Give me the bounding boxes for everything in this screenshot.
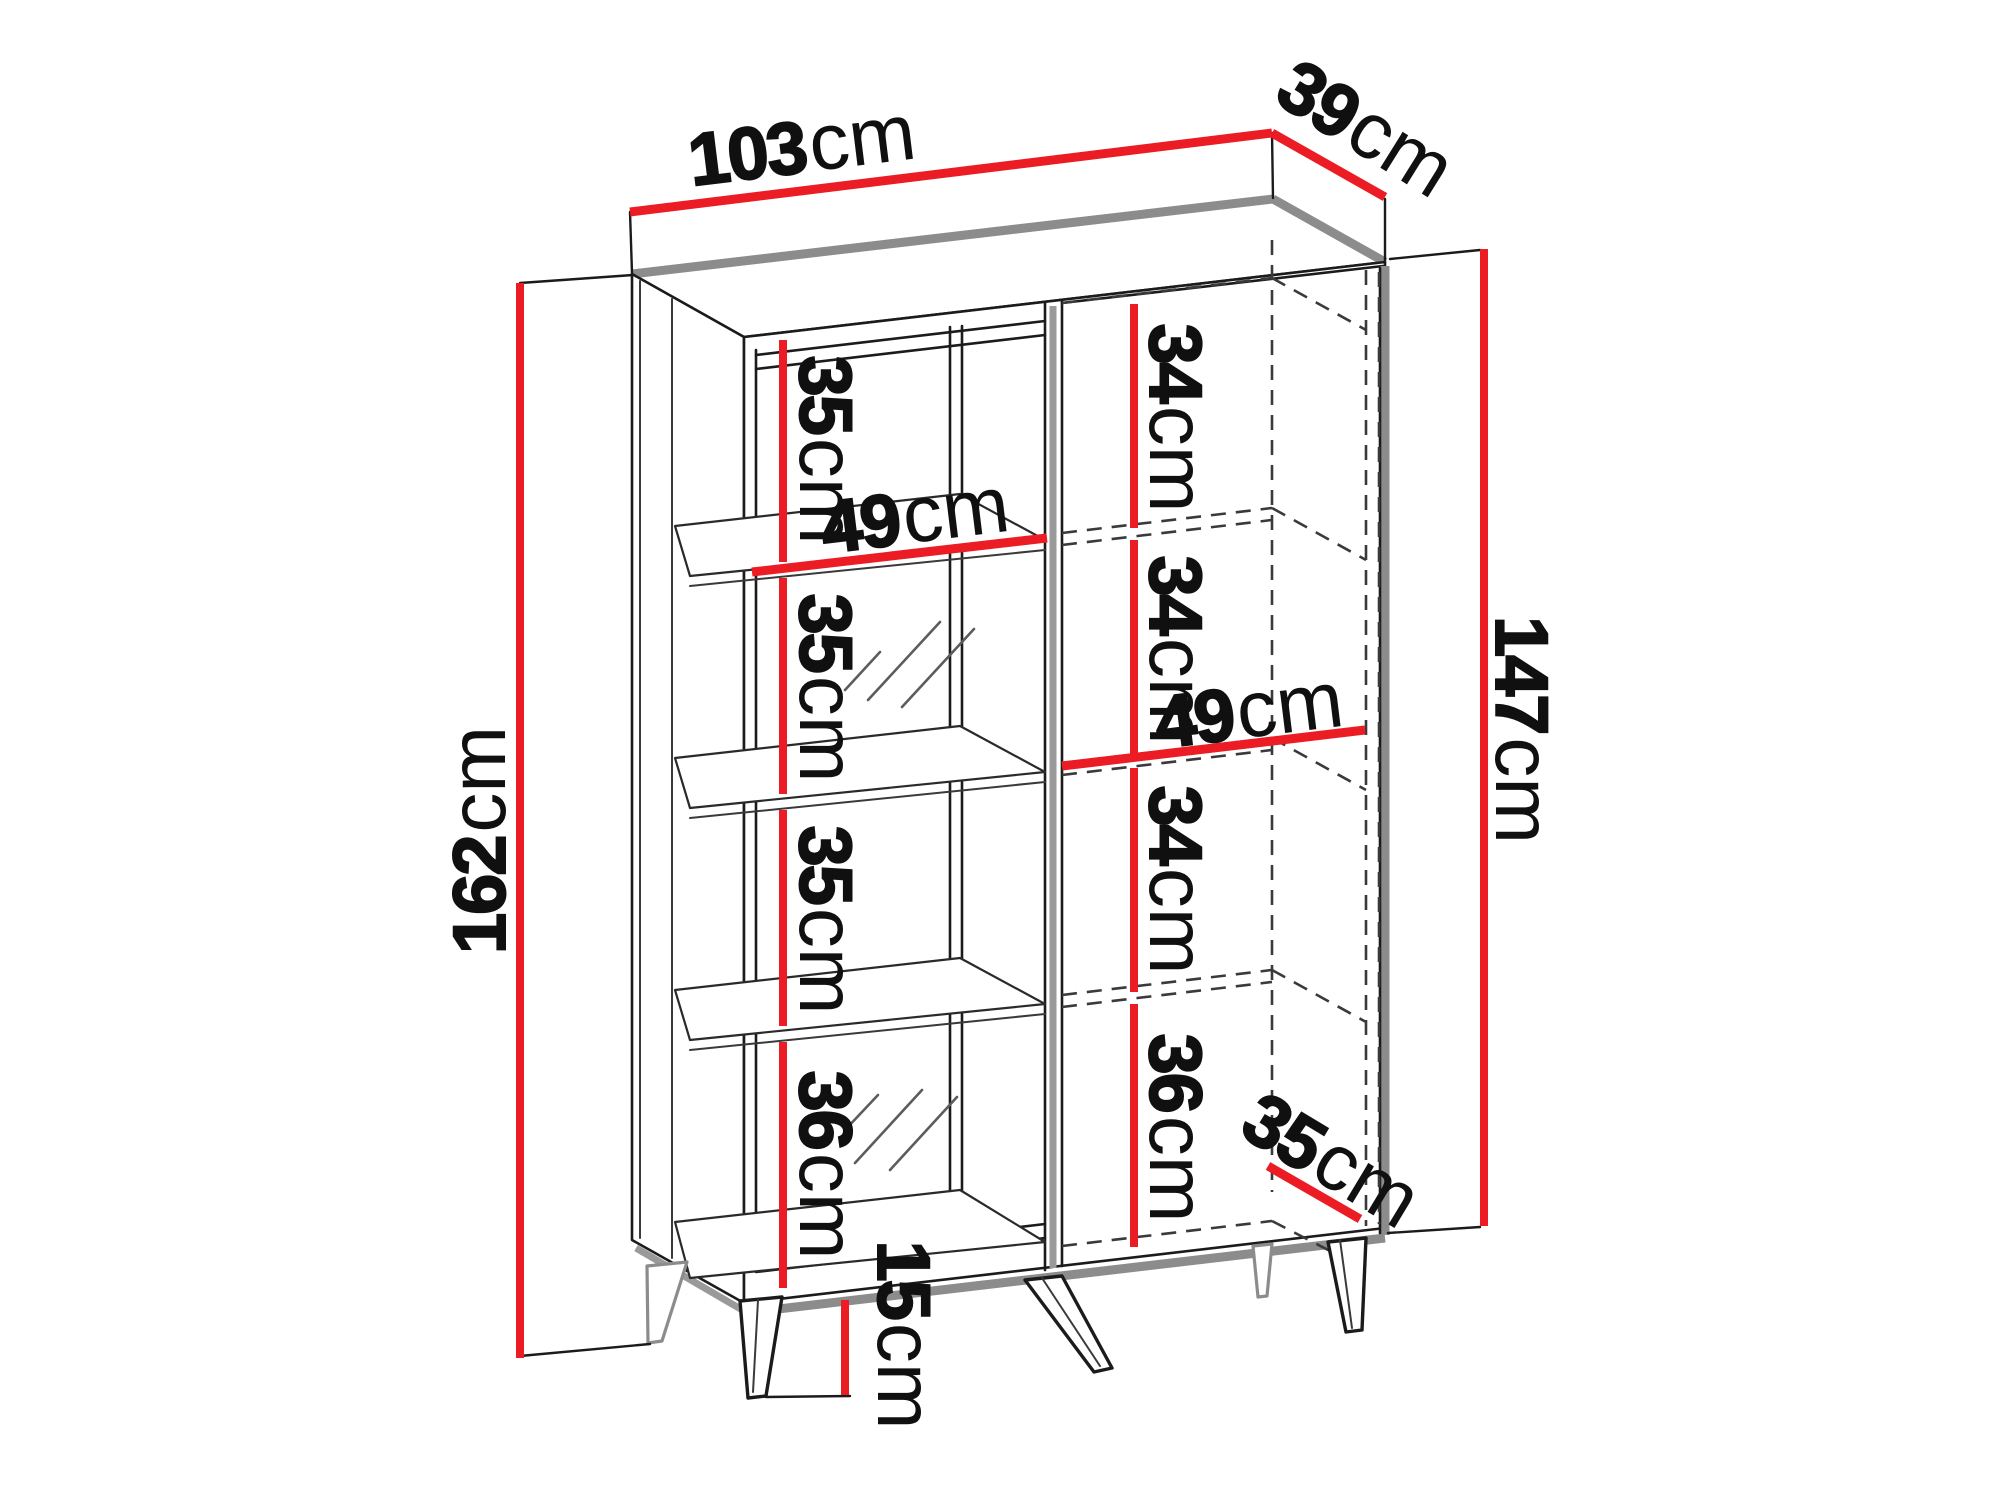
right-compartment-1-label: 34cm [1133,324,1222,513]
back-left-leg [647,1262,687,1343]
cabinet-drawing [632,199,1385,1398]
right-compartment-3-label: 34cm [1133,786,1222,975]
furniture-dimension-diagram: 103cm 39cm 162cm 147cm 35cm 35cm 35cm 36… [0,0,2000,1500]
total-width-label: 103cm [683,87,920,203]
middle-leg [1025,1276,1112,1372]
right-compartment-4-label: 36cm [1133,1034,1222,1223]
left-compartment-2-label: 35cm [783,594,872,783]
total-height-label: 162cm [433,726,522,954]
front-left-leg [740,1297,782,1398]
left-compartment-3-label: 35cm [783,826,872,1015]
body-height-label: 147cm [1479,616,1568,844]
left-compartment-4-label: 36cm [783,1071,872,1260]
leg-height-label: 15cm [861,1241,950,1430]
diagram-canvas: 103cm 39cm 162cm 147cm 35cm 35cm 35cm 36… [0,0,2000,1500]
back-right-leg [1253,1244,1272,1297]
